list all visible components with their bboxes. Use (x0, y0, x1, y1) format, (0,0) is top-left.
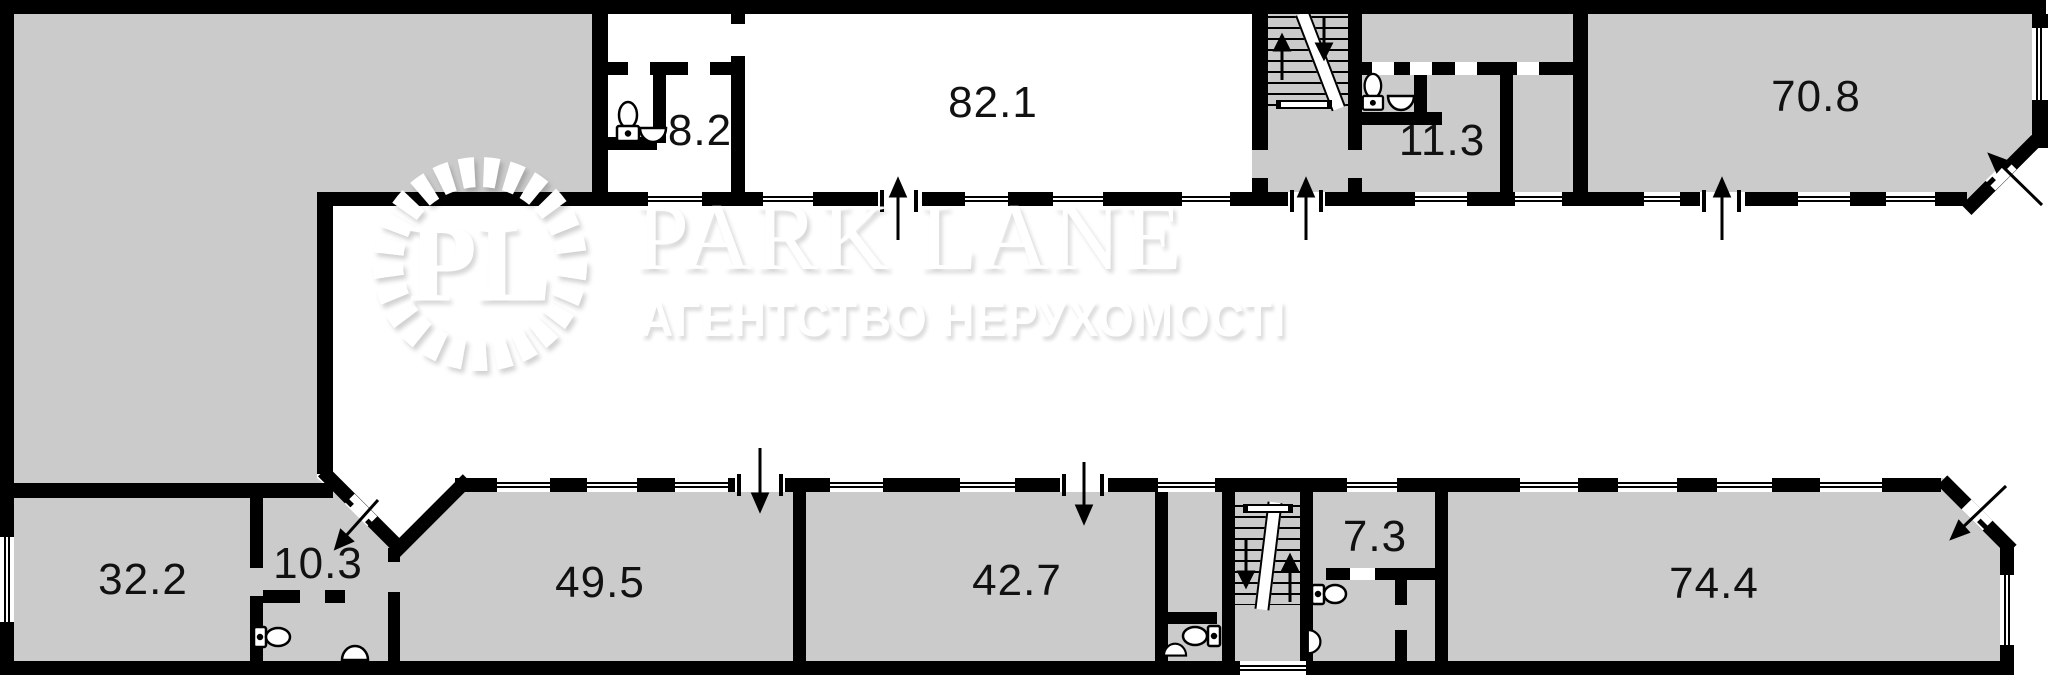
wall (250, 596, 263, 661)
wall (1348, 178, 1362, 192)
wall (592, 14, 608, 192)
wall (793, 492, 806, 661)
door-jamb-dash (779, 474, 783, 496)
door-jamb-dash (1062, 474, 1066, 496)
wall (1395, 580, 1407, 605)
wall (731, 56, 745, 192)
window-symbol (830, 478, 883, 492)
window-symbol (1618, 478, 1677, 492)
wall (1252, 14, 1268, 150)
door-opening-symbol (1410, 62, 1432, 75)
watermark-tagline: АГЕНТСТВО НЕРУХОМОСТІ (640, 290, 1286, 348)
window-symbol (1053, 192, 1103, 206)
door-jamb-dash (1100, 474, 1104, 496)
window-symbol (763, 192, 813, 206)
door-jamb-dash (880, 190, 884, 212)
wall (1348, 14, 1362, 150)
window-symbol (1886, 192, 1935, 206)
window-symbol (1520, 478, 1578, 492)
wall-outer-bottom (0, 661, 2014, 675)
door-opening-symbol (735, 478, 785, 492)
door-jamb-dash (737, 474, 741, 496)
window-symbol (1347, 478, 1397, 492)
door-opening-symbol (1455, 62, 1477, 75)
window-symbol (1798, 192, 1850, 206)
wall (1435, 478, 1448, 661)
door-jamb-dash (914, 190, 918, 212)
wall (608, 137, 657, 150)
room-area-label: 74.4 (1669, 559, 1759, 609)
wall (14, 483, 333, 498)
door-jamb-dash (1702, 190, 1706, 212)
window-symbol (497, 478, 550, 492)
room-area-label: 49.5 (555, 558, 645, 608)
window-symbol (1717, 478, 1772, 492)
floor-plan: 8.2 82.1 11.3 70.8 32.2 10.3 49.5 42.7 7… (0, 0, 2048, 675)
window-symbol (1158, 478, 1215, 492)
window-symbol (1415, 192, 1467, 206)
wall (1500, 75, 1513, 192)
window-symbol (1515, 192, 1562, 206)
wall (653, 75, 666, 143)
wall (731, 14, 745, 24)
wall (1395, 630, 1407, 661)
room-area-label: 11.3 (1399, 116, 1485, 166)
door-opening-symbol (628, 62, 650, 75)
window-symbol (675, 478, 728, 492)
window-symbol (587, 478, 637, 492)
wall (250, 498, 263, 568)
door-opening-symbol (1517, 62, 1539, 75)
room-area-label: 10.3 (273, 539, 363, 589)
wall (1573, 14, 1588, 206)
watermark-monogram: PL (408, 200, 551, 329)
wall (1326, 568, 1446, 580)
wall (263, 590, 300, 603)
stair-landing-rail-inner (1281, 102, 1327, 107)
door-opening-symbol (688, 62, 710, 75)
window-symbol (1820, 478, 1882, 492)
wall (1155, 612, 1217, 624)
room-area-label: 8.2 (668, 106, 732, 156)
wall (1155, 492, 1168, 661)
wall (317, 206, 333, 474)
window-symbol (648, 192, 702, 206)
room-fill-top-left-leg (14, 192, 317, 483)
window-symbol (0, 537, 14, 622)
wall (1414, 75, 1427, 115)
room-area-label: 32.2 (98, 555, 188, 605)
door-jamb-dash (1737, 190, 1741, 212)
door-opening-symbol (1350, 568, 1375, 580)
window-symbol (965, 192, 1008, 206)
window-symbol (2032, 28, 2048, 100)
window-symbol (1182, 192, 1230, 206)
door-opening-symbol (1372, 62, 1394, 75)
room-area-label: 70.8 (1771, 72, 1861, 122)
room-fill-top-left (14, 14, 592, 192)
window-symbol (1644, 192, 1680, 206)
room-area-label: 42.7 (972, 556, 1062, 606)
window-symbol (2000, 575, 2014, 645)
stair-landing-rail-inner (1248, 506, 1288, 511)
wall (1222, 492, 1235, 661)
room-area-label: 7.3 (1343, 512, 1407, 562)
window-symbol (1240, 661, 1306, 675)
door-jamb-dash (1290, 190, 1294, 212)
door-jamb-dash (1319, 190, 1323, 212)
window-symbol (960, 478, 1015, 492)
wall (388, 592, 400, 661)
wall (1252, 178, 1268, 192)
wall (1300, 492, 1313, 661)
wall-outer-top (0, 0, 2046, 14)
room-fill-top-right-band (1252, 14, 2032, 206)
room-area-label: 82.1 (948, 78, 1038, 128)
wall (325, 590, 345, 603)
